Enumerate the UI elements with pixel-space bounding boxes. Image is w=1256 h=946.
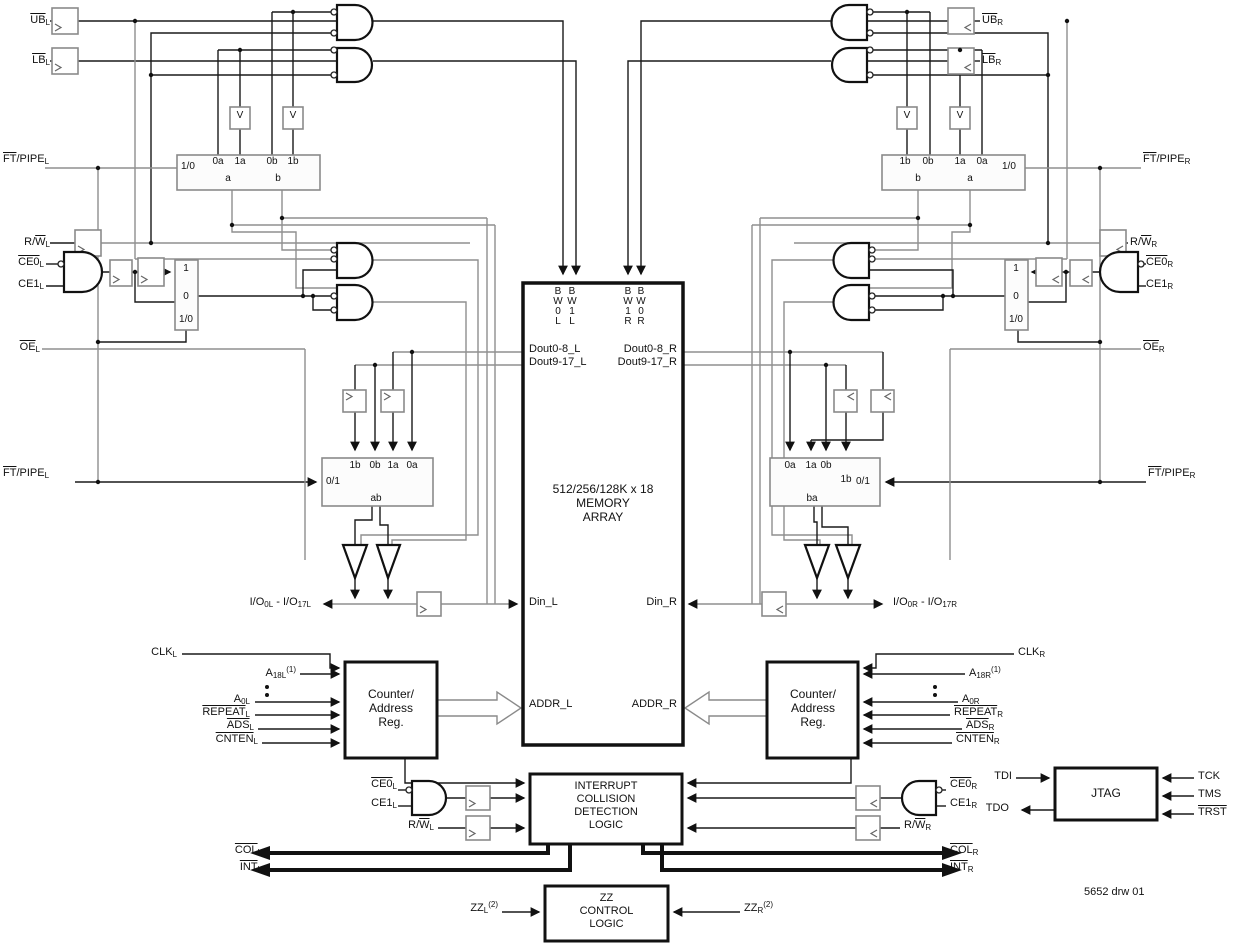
adsr-label: ADSR [966, 719, 994, 734]
ce-mux-1: 1 [180, 263, 192, 274]
and-gate [337, 48, 372, 82]
and-gate [902, 781, 936, 815]
a18r-label: A18R(1) [969, 664, 1001, 682]
outmux-select: 0/1 [856, 476, 870, 487]
mux-port-1b: 1b [285, 156, 301, 167]
and-gate [337, 5, 373, 40]
and-gate [1100, 252, 1138, 292]
mux-port-1a: 1a [232, 156, 248, 167]
mux-select-label: 1/0 [181, 161, 195, 172]
clkl-label: CLKL [133, 646, 177, 661]
tck-label: TCK [1198, 770, 1220, 782]
mux-port-1a: 1a [952, 156, 968, 167]
lbl-label: LBL [6, 54, 50, 69]
mux-port-a: a [963, 173, 977, 184]
mux-port-0a: 0a [210, 156, 226, 167]
tms-label: TMS [1198, 788, 1221, 800]
and-gate [337, 285, 373, 320]
jtag-title: JTAG [1055, 786, 1157, 800]
ftpipel-top-label: FT/PIPEL [3, 153, 49, 168]
and-gate [834, 243, 870, 278]
ftpiper-bottom-label: FT/PIPER [1148, 467, 1195, 482]
ce1l-label: CE1L [0, 278, 44, 293]
bw0l-port: B W 0 L [553, 287, 563, 327]
tdi-label: TDI [972, 770, 1012, 782]
delay-v-label: V [233, 110, 247, 121]
mux-port-0b: 0b [920, 156, 936, 167]
intr-label: INTR [950, 861, 974, 876]
ce-mux-select: 1/0 [1006, 314, 1026, 325]
mux-port-0a: 0a [974, 156, 990, 167]
dout08r-port: Dout0-8_R [597, 343, 677, 355]
delay-v-label: V [900, 110, 914, 121]
trst-label: TRST [1198, 806, 1227, 818]
adsl-label: ADSL [208, 719, 254, 734]
outmux-port-1b: 1b [347, 460, 363, 471]
drawing-number: 5652 drw 01 [1084, 886, 1145, 898]
rwr-label: R/WR [1130, 236, 1157, 251]
zzl-label: ZZL(2) [446, 899, 498, 917]
outmux-port-0a: 0a [782, 460, 798, 471]
ce-mux-1: 1 [1010, 263, 1022, 274]
clkr-label: CLKR [1018, 646, 1045, 661]
outmux-select: 0/1 [326, 476, 340, 487]
ce0l-int-label: CE0L [353, 778, 397, 793]
memory-array-title: 512/256/128K x 18 MEMORY ARRAY [536, 482, 670, 524]
ubl-label: UBL [6, 14, 50, 29]
rwl-int-label: R/WL [388, 819, 434, 834]
delay-v-label: V [286, 110, 300, 121]
ubr-label: UBR [982, 14, 1003, 29]
rwr-int-label: R/WR [904, 819, 931, 834]
cntenl-label: CNTENL [194, 733, 258, 748]
rwl-label: R/WL [2, 236, 50, 251]
outmux-port-1a: 1a [803, 460, 819, 471]
ftpipel-bottom-label: FT/PIPEL [3, 467, 49, 482]
cntenr-label: CNTENR [956, 733, 1000, 748]
zzr-label: ZZR(2) [744, 899, 773, 917]
ce-mux-select: 1/0 [176, 314, 196, 325]
output-buffer [805, 545, 829, 578]
output-buffer [377, 545, 400, 578]
dinl-port: Din_L [529, 596, 558, 608]
outmux-port-0b: 0b [818, 460, 834, 471]
output-buffer [343, 545, 367, 578]
outmux-port-1a: 1a [385, 460, 401, 471]
counter-right-title: Counter/ Address Reg. [767, 687, 859, 729]
mux-select-label: 1/0 [1002, 161, 1016, 172]
intl-label: INTL [228, 861, 262, 876]
outmux-ba: ba [802, 493, 822, 504]
counter-left-title: Counter/ Address Reg. [345, 687, 437, 729]
interrupt-logic-title: INTERRUPT COLLISION DETECTION LOGIC [532, 780, 680, 832]
outmux-port-1b: 1b [838, 474, 854, 485]
oer-label: OER [1143, 341, 1165, 356]
ce1l-int-label: CE1L [353, 797, 397, 812]
a18l-label: A18L(1) [238, 664, 296, 682]
io-right-label: I/O0R - I/O17R [893, 596, 957, 611]
outmux-port-0a: 0a [404, 460, 420, 471]
io-left-label: I/O0L - I/O17L [225, 596, 311, 611]
ftpiper-top-label: FT/PIPER [1143, 153, 1190, 168]
bw1l-port: B W 1 L [567, 287, 577, 327]
oel-label: OEL [2, 341, 40, 356]
mux-port-0b: 0b [264, 156, 280, 167]
tdo-label: TDO [969, 802, 1009, 814]
and-gate [834, 285, 870, 320]
mux-port-b: b [271, 173, 285, 184]
ce-mux-0: 0 [180, 291, 192, 302]
ce0r-label: CE0R [1146, 256, 1173, 271]
and-gate [832, 5, 868, 40]
ce1r-label: CE1R [1146, 278, 1173, 293]
ce-mux-0: 0 [1010, 291, 1022, 302]
delay-v-label: V [953, 110, 967, 121]
outmux-port-0b: 0b [367, 460, 383, 471]
and-gate [412, 781, 446, 815]
and-gate [64, 252, 102, 292]
dinr-port: Din_R [597, 596, 677, 608]
addrl-port: ADDR_L [529, 698, 572, 710]
colr-label: COLR [950, 844, 978, 859]
output-buffer [836, 545, 860, 578]
functional-block-diagram: UBL LBL FT/PIPEL R/WL CE0L CE1L OEL FT/P… [0, 0, 1256, 946]
coll-label: COLL [226, 844, 262, 859]
lbr-label: LBR [982, 54, 1001, 69]
and-gate [337, 243, 373, 278]
bw0r-port: B W 0 R [636, 287, 646, 327]
dout917r-port: Dout9-17_R [597, 356, 677, 368]
ce0l-label: CE0L [0, 256, 44, 271]
mux-port-1b: 1b [897, 156, 913, 167]
mux-port-b: b [911, 173, 925, 184]
addrr-port: ADDR_R [597, 698, 677, 710]
dout917l-port: Dout9-17_L [529, 356, 587, 368]
bw1r-port: B W 1 R [623, 287, 633, 327]
dout08l-port: Dout0-8_L [529, 343, 580, 355]
zz-control-title: ZZ CONTROL LOGIC [547, 892, 666, 931]
and-gate [832, 48, 867, 82]
mux-port-a: a [221, 173, 235, 184]
outmux-ab: ab [366, 493, 386, 504]
